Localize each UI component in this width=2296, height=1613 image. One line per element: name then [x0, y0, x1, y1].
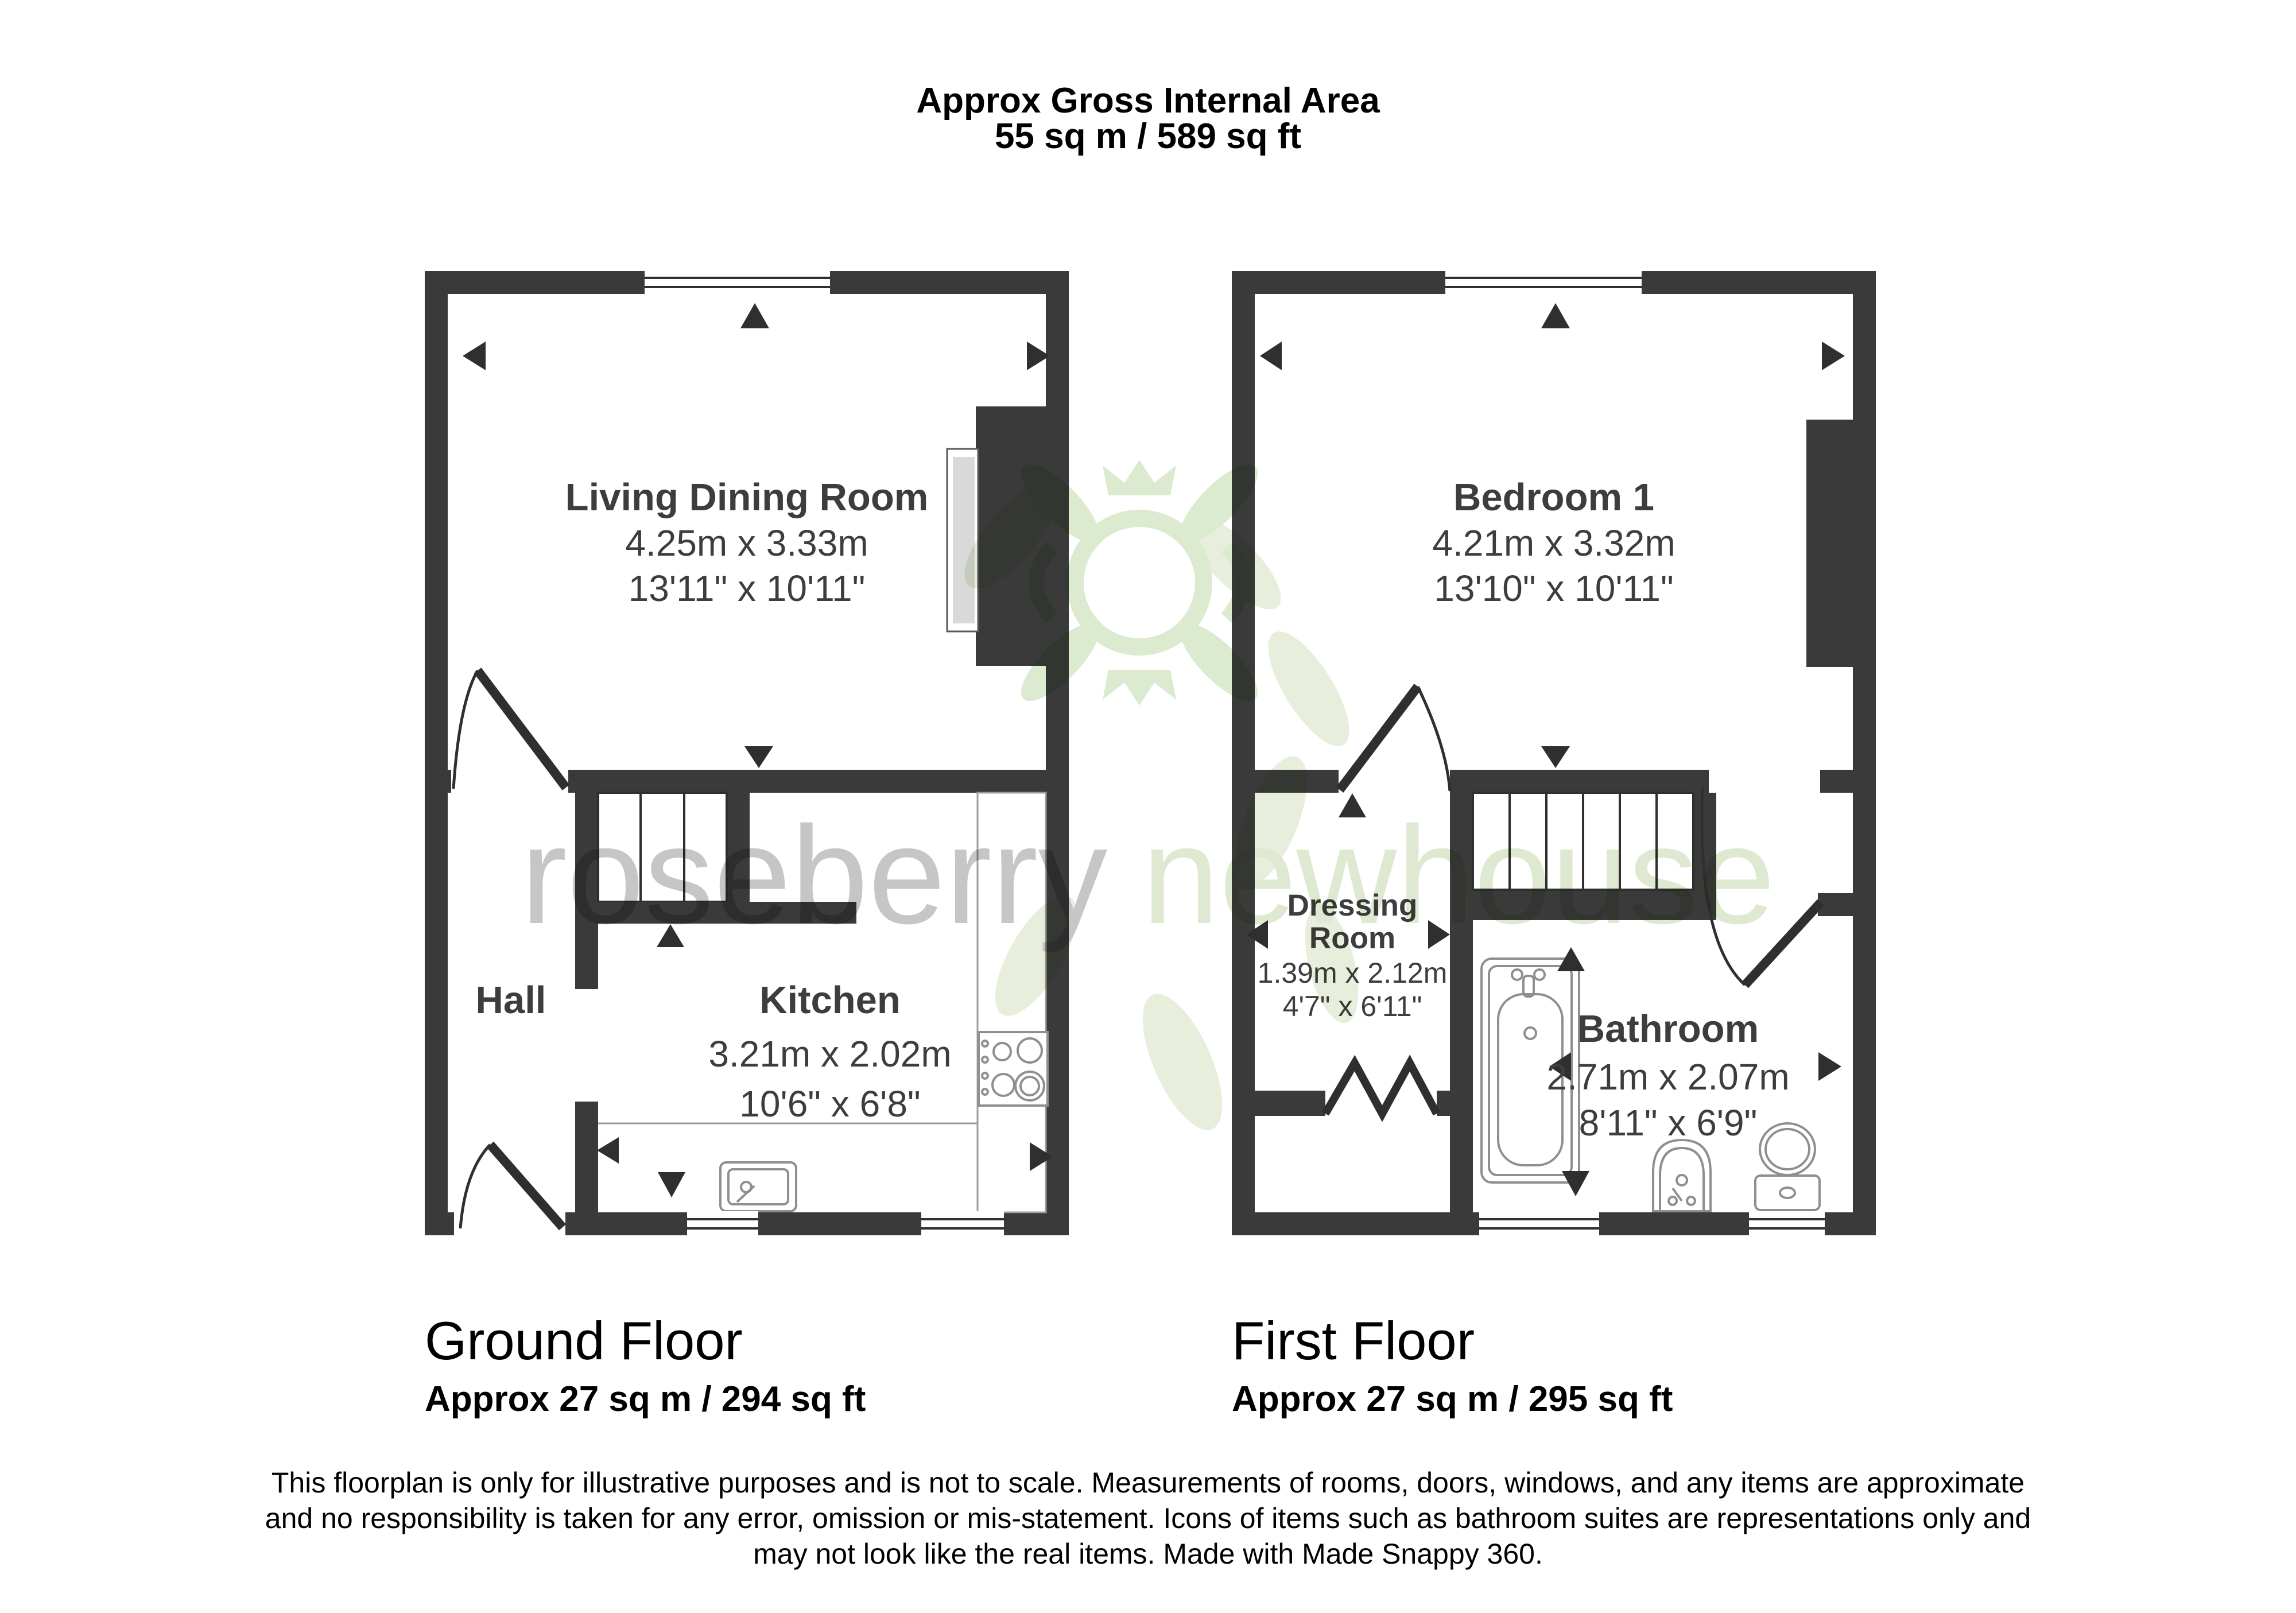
gf-sink-icon [720, 1162, 796, 1211]
wordmark-roseberry: roseberry [521, 798, 1107, 953]
gf-down-triangle-icon [744, 746, 773, 768]
kitchen-name: Kitchen [759, 979, 901, 1022]
wordmark-newhouse: newhouse [1142, 798, 1775, 953]
ff-chimney-breast [1806, 420, 1853, 667]
ground-floor-plan: Living Dining Room 4.25m x 3.33m 13'11" … [425, 270, 1069, 1238]
floor-captions: Ground Floor Approx 27 sq m / 294 sq ft … [425, 1310, 1673, 1419]
gf-hob-icon [979, 1032, 1048, 1106]
first-floor-area: Approx 27 sq m / 295 sq ft [1232, 1379, 1673, 1419]
ground-floor-area: Approx 27 sq m / 294 sq ft [425, 1379, 866, 1419]
gf-kitchen-down-triangle-icon [658, 1172, 685, 1197]
gf-left-wall [425, 271, 448, 1235]
agency-wordmark: roseberrynewhouse [521, 798, 1775, 953]
gf-left-triangle-icon [463, 342, 486, 370]
ff-up-triangle-icon [1541, 303, 1570, 328]
gf-right-wall [1046, 271, 1069, 1235]
ff-right-triangle-icon [1822, 342, 1845, 370]
gf-fireplace-icon [947, 449, 978, 631]
bedroom-name: Bedroom 1 [1453, 476, 1654, 519]
ff-bathroom-door-opening [1709, 767, 1820, 795]
living-room-imperial: 13'11" x 10'11" [629, 568, 866, 609]
ff-right-wall [1853, 271, 1876, 1235]
ff-left-triangle-icon [1260, 342, 1282, 370]
living-room-metric: 4.25m x 3.33m [625, 522, 868, 564]
floorplan-image: Approx Gross Internal Area 55 sq m / 589… [0, 0, 2296, 1613]
ff-toilet-icon [1755, 1123, 1820, 1210]
ff-bottom-window-right-icon [1749, 1211, 1825, 1236]
bedroom-metric: 4.21m x 3.32m [1432, 522, 1675, 564]
ff-left-wall [1232, 271, 1255, 1235]
first-floor-caption: First Floor [1232, 1310, 1475, 1371]
disclaimer-line2: and no responsibility is taken for any e… [265, 1502, 2031, 1534]
kitchen-imperial: 10'6" x 6'8" [739, 1083, 920, 1125]
ff-down-triangle-icon [1541, 746, 1570, 768]
gf-bottom-window-right-icon [921, 1211, 1004, 1236]
ff-dressing-bottom-wall-left [1255, 1091, 1325, 1116]
title-line2: 55 sq m / 589 sq ft [995, 117, 1301, 156]
gross-internal-area-title: Approx Gross Internal Area 55 sq m / 589… [916, 81, 1380, 156]
title-line1: Approx Gross Internal Area [916, 81, 1380, 121]
bedroom-imperial: 13'10" x 10'11" [1434, 568, 1673, 609]
ff-top-window-icon [1445, 270, 1642, 295]
ff-bottom-window-left-icon [1479, 1211, 1599, 1236]
ground-floor-caption: Ground Floor [425, 1310, 743, 1371]
ff-bifold-door-icon [1325, 1063, 1437, 1114]
living-room-name: Living Dining Room [565, 476, 929, 519]
gf-bottom-window-left-icon [687, 1211, 758, 1236]
disclaimer-line1: This floorplan is only for illustrative … [272, 1467, 2024, 1499]
gf-kitchen-left-triangle-icon [597, 1137, 619, 1164]
floorplan-page: Approx Gross Internal Area 55 sq m / 589… [0, 0, 2296, 1613]
gf-hall-stub-wall [575, 1102, 598, 1212]
bathroom-imperial: 8'11" x 6'9" [1579, 1102, 1758, 1143]
gf-up-triangle-icon [740, 303, 769, 328]
hall-name: Hall [476, 979, 546, 1022]
gf-top-window-icon [645, 270, 830, 295]
ff-bathroom-right-triangle-icon [1818, 1052, 1841, 1081]
bathroom-metric: 2.71m x 2.07m [1546, 1056, 1789, 1098]
disclaimer-line3: may not look like the real items. Made w… [753, 1538, 1543, 1570]
bathroom-name: Bathroom [1577, 1007, 1759, 1050]
kitchen-metric: 3.21m x 2.02m [708, 1033, 951, 1075]
ff-basin-icon [1653, 1140, 1711, 1211]
first-floor-plan: Bedroom 1 4.21m x 3.32m 13'10" x 10'11" … [1232, 270, 1876, 1236]
disclaimer: This floorplan is only for illustrative … [265, 1467, 2031, 1570]
